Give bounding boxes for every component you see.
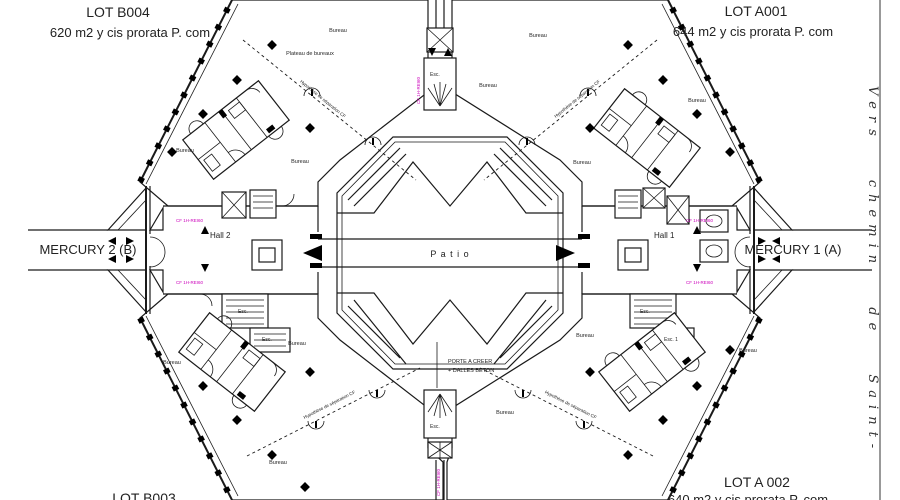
- bureau-label: Bureau: [291, 159, 309, 165]
- stairs-label: Esc.: [238, 309, 248, 315]
- lot-b004-title: LOT B004: [86, 4, 150, 20]
- bureau-label: Bureau: [176, 148, 194, 154]
- fire-rating-label: CF 1H-REI60: [176, 218, 204, 223]
- bureau-label: Bureau: [329, 28, 347, 34]
- patio-label: P a t i o: [430, 249, 469, 259]
- lot-a002-area: 640 m2 y cis prorata P. com: [668, 492, 828, 500]
- hall-west-label: Hall 2: [210, 231, 231, 240]
- entrance-west-label: MERCURY 2 (B): [39, 242, 136, 257]
- core-lot-b004: [178, 74, 294, 185]
- bureau-label: Bureau: [688, 98, 706, 104]
- plateau-label: Plateau de bureaux: [286, 51, 334, 57]
- lot-a001-title: LOT A001: [725, 3, 788, 19]
- street-label: Vers chemin de Saint-: [865, 86, 880, 455]
- fire-rating-label: CF 1H-REI60: [686, 218, 714, 223]
- bureau-label: Bureau: [739, 348, 757, 354]
- bureau-label: Bureau: [163, 360, 181, 366]
- west-entrance-door-arcs: [150, 237, 165, 267]
- lot-b003-title: LOT B003: [112, 490, 176, 500]
- entrance-east-label: MERCURY 1 (A): [744, 242, 841, 257]
- floor-plan-drawing: Vers chemin de Saint- LOT B004 620 m2 y …: [0, 0, 900, 500]
- west-hall: [163, 190, 318, 352]
- fire-rating-label: CF 1H-REI60: [436, 468, 441, 496]
- bureau-label: Bureau: [496, 410, 514, 416]
- corridor-arrow-west: [303, 245, 322, 261]
- center-note-line1: PORTE A CREER: [448, 359, 492, 365]
- hall-east-label: Hall 1: [654, 231, 675, 240]
- core-lot-b003: [174, 306, 290, 417]
- bureau-label: Bureau: [529, 33, 547, 39]
- lot-b004-area: 620 m2 y cis prorata P. com: [50, 25, 210, 40]
- fire-rating-label: CF 1H-REI60: [686, 280, 714, 285]
- separation-label: Hypothèse de séparation CF: [303, 389, 357, 420]
- stairs-label: Esc.: [262, 337, 272, 343]
- patio-structure: [303, 137, 590, 388]
- bureau-label: Bureau: [269, 460, 287, 466]
- fire-rating-label: CF 1H-REI60: [176, 280, 204, 285]
- stairs-label: Esc.: [430, 72, 440, 78]
- corridor-arrow-east: [556, 245, 575, 261]
- street-edge: Vers chemin de Saint-: [865, 0, 880, 500]
- lot-a001-area: 644 m2 y cis prorata P. com: [673, 24, 833, 39]
- separation-label: Hypothèse de séparation CF: [553, 79, 601, 119]
- bureau-label: Bureau: [288, 341, 306, 347]
- stairs-label: Esc.: [640, 309, 650, 315]
- bureau-label: Bureau: [573, 160, 591, 166]
- bureau-label: Bureau: [479, 83, 497, 89]
- floor-plan-page: Vers chemin de Saint- LOT B004 620 m2 y …: [0, 0, 900, 500]
- stairs1-label: Esc. 1: [664, 337, 678, 343]
- stairs-label: Esc.: [430, 424, 440, 430]
- fire-rating-label: CF 1H-REI60: [416, 76, 421, 104]
- north-stair-shaft: [424, 0, 456, 110]
- center-note-line2: + DALLES BETON: [448, 368, 494, 374]
- separation-label: Hypothèse de séparation CF: [299, 79, 347, 119]
- bureau-label: Bureau: [576, 333, 594, 339]
- lot-a002-title: LOT A 002: [724, 474, 790, 490]
- separation-label: Hypothèse de séparation CF: [544, 389, 598, 420]
